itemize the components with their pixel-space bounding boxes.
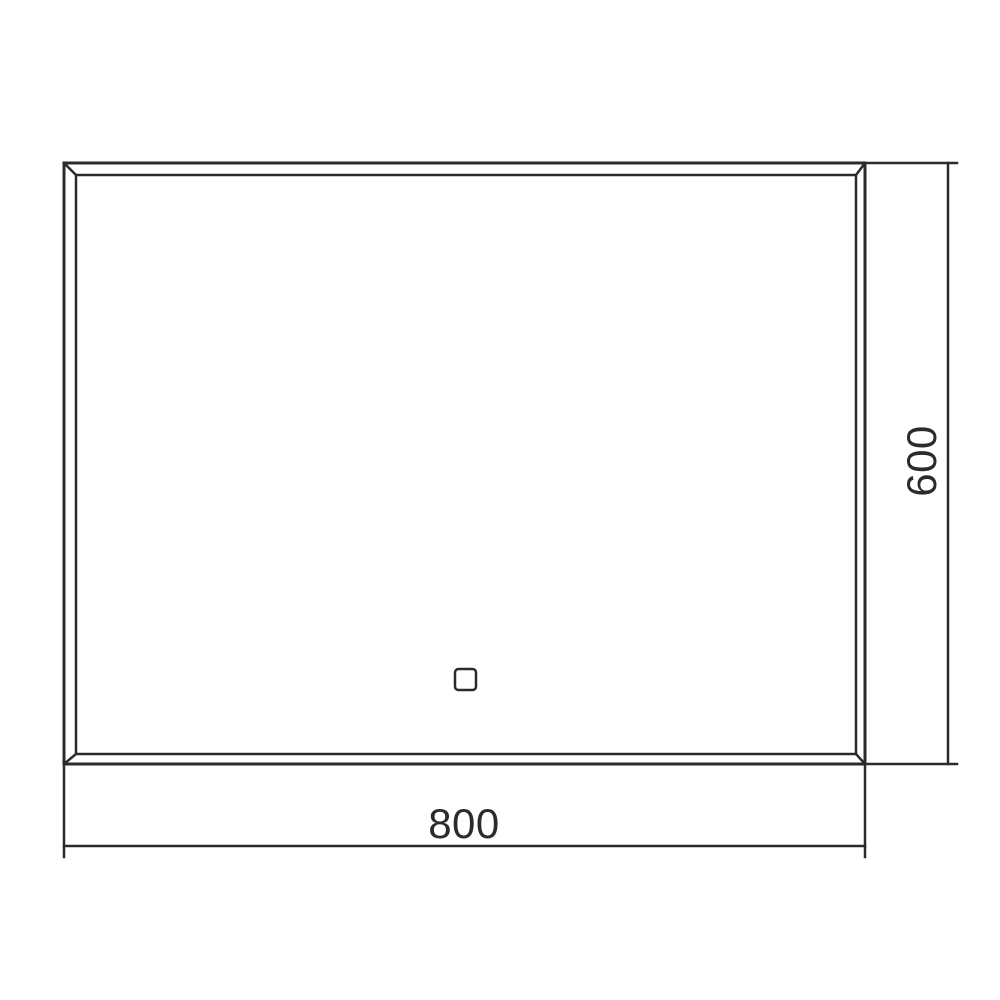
height-dimension-label: 600 (898, 425, 945, 497)
width-dimension-label: 800 (428, 800, 500, 847)
technical-drawing-page: 800 600 (0, 0, 1000, 1000)
mirror-inner-frame (76, 175, 856, 754)
mirror-outer-frame (64, 163, 865, 764)
corner-bevel-line-top-left (64, 163, 76, 175)
technical-drawing-canvas: 800 600 (0, 0, 1000, 1000)
touch-sensor-icon (455, 669, 476, 690)
